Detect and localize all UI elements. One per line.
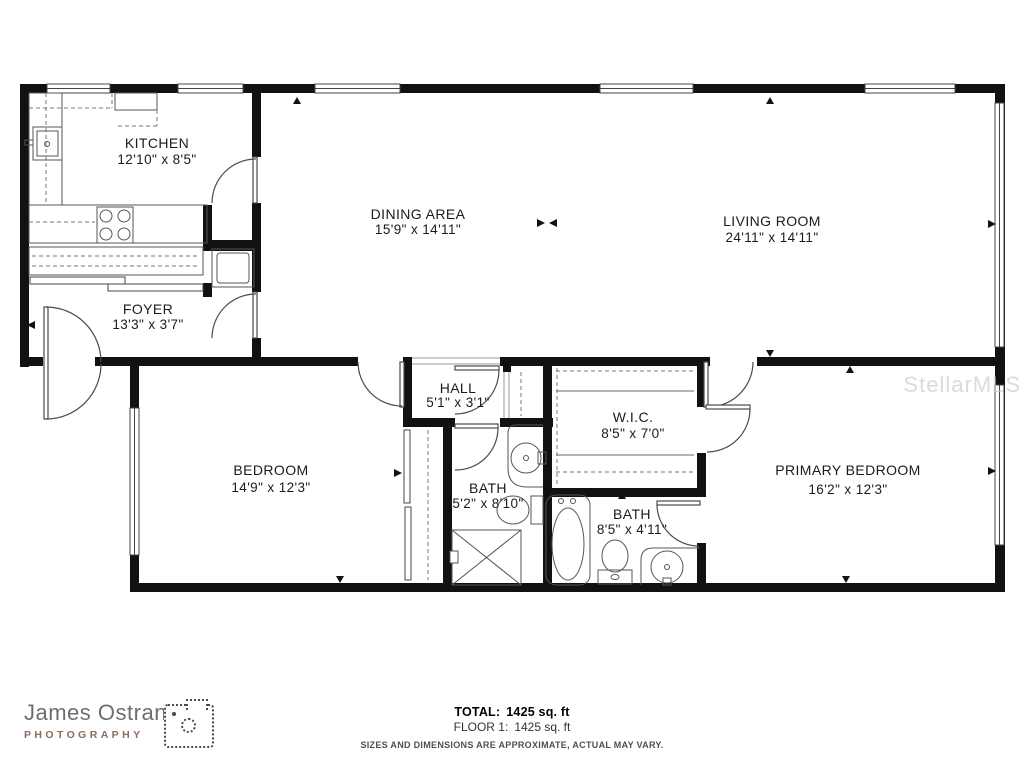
wall-washer-alcove <box>203 283 212 297</box>
floor-plan-canvas: KITCHEN 12'10" x 8'5" DINING AREA 15'9" … <box>0 0 1024 768</box>
primary-bedroom-door <box>704 362 753 407</box>
foyer-fixtures <box>29 247 254 291</box>
floor-label: FLOOR 1: <box>454 720 509 734</box>
room-dims-bath-primary: 8'5" x 4'11" <box>597 522 667 537</box>
floor-area: FLOOR 1:1425 sq. ft <box>0 720 1024 734</box>
wall-foyer-dining-upper <box>252 250 261 292</box>
room-label-bath-hall: BATH <box>469 480 507 496</box>
room-label-hall: HALL <box>440 380 477 396</box>
kitchen-counter-top-block <box>115 93 157 110</box>
room-dims-bedroom: 14'9" x 12'3" <box>231 480 310 495</box>
foyer-closet <box>29 247 203 275</box>
bath1-sink <box>511 443 546 473</box>
total-area: TOTAL:1425 sq. ft <box>0 705 1024 719</box>
kitchen-fixtures <box>25 93 207 243</box>
room-dims-primary-bedroom: 16'2" x 12'3" <box>808 482 887 497</box>
wall-foyer-dining-lower <box>252 338 261 357</box>
wall-hall-bottom-left <box>403 418 455 427</box>
foyer-closet-sliders <box>30 277 203 291</box>
room-dims-bath-hall: 5'2" x 8'10" <box>452 496 523 511</box>
area-summary: TOTAL:1425 sq. ft FLOOR 1:1425 sq. ft <box>0 705 1024 734</box>
wall-left-upper <box>20 84 29 367</box>
room-dims-living: 24'11" x 14'11" <box>725 230 818 245</box>
hall-bath-door <box>455 424 498 470</box>
bathtub <box>546 495 590 585</box>
room-label-foyer: FOYER <box>123 301 173 317</box>
wall-wic-bottom <box>543 488 706 497</box>
wall-bottom <box>130 583 1005 592</box>
bath1-shower <box>450 530 521 585</box>
bath2-sink <box>641 548 700 585</box>
total-label: TOTAL: <box>454 705 500 719</box>
disclaimer-text: SIZES AND DIMENSIONS ARE APPROXIMATE, AC… <box>0 740 1024 750</box>
wall-closet-bath-divider <box>443 427 452 591</box>
laundry-unit <box>212 249 254 287</box>
room-label-bedroom: BEDROOM <box>233 462 308 478</box>
floor-value: 1425 sq. ft <box>514 720 570 734</box>
mls-watermark: StellarMLS <box>903 372 1021 397</box>
room-dims-kitchen: 12'10" x 8'5" <box>117 152 196 167</box>
wall-middle <box>20 357 1005 366</box>
room-dims-foyer: 13'3" x 3'7" <box>112 317 183 332</box>
wall-top <box>20 84 1005 93</box>
wall-hall-stub <box>503 357 511 372</box>
room-label-dining: DINING AREA <box>371 206 466 222</box>
wall-kitchen-dining-upper <box>252 84 261 157</box>
kitchen-door <box>212 157 257 203</box>
wall-central-vertical <box>543 357 552 591</box>
foyer-door <box>212 292 257 338</box>
room-dims-hall: 5'1" x 3'1" <box>426 395 489 410</box>
room-label-wic: W.I.C. <box>613 409 654 425</box>
room-dims-dining: 15'9" x 14'11" <box>375 222 461 237</box>
room-label-kitchen: KITCHEN <box>125 135 189 151</box>
room-dims-wic: 8'5" x 7'0" <box>601 426 664 441</box>
kitchen-stove <box>97 207 133 243</box>
wall-wic-right-bottom <box>697 543 706 591</box>
bedroom-closet <box>404 430 428 580</box>
kitchen-sink <box>25 127 62 160</box>
room-label-bath-primary: BATH <box>613 506 651 522</box>
floor-plan-page: KITCHEN 12'10" x 8'5" DINING AREA 15'9" … <box>0 0 1024 768</box>
total-value: 1425 sq. ft <box>506 705 569 719</box>
bedroom-door <box>358 362 404 407</box>
bath2-toilet <box>598 540 632 584</box>
room-label-living: LIVING ROOM <box>723 213 821 229</box>
wic-door <box>706 405 750 452</box>
room-label-primary-bedroom: PRIMARY BEDROOM <box>775 462 921 478</box>
room-labels: KITCHEN 12'10" x 8'5" DINING AREA 15'9" … <box>112 135 920 537</box>
